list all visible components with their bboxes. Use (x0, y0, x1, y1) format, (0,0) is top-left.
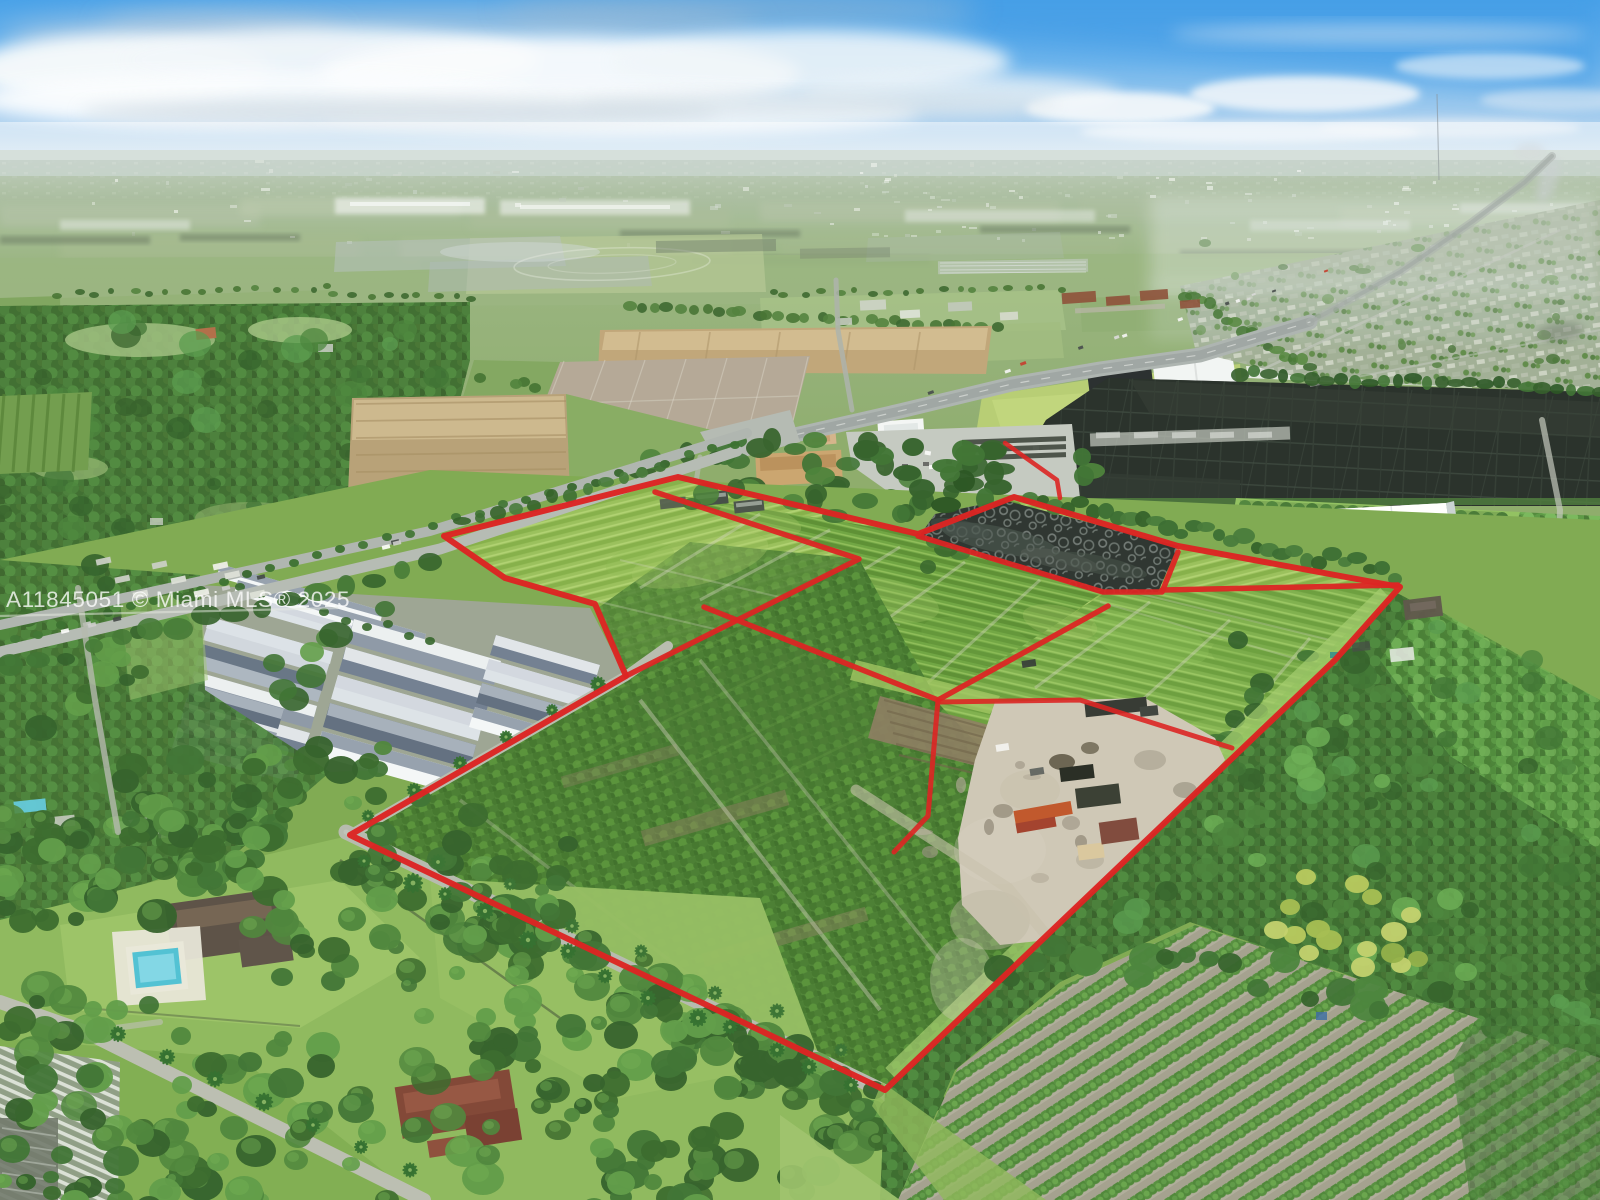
svg-text:A11845051 © Miami MLS® 2025: A11845051 © Miami MLS® 2025 (6, 587, 350, 612)
